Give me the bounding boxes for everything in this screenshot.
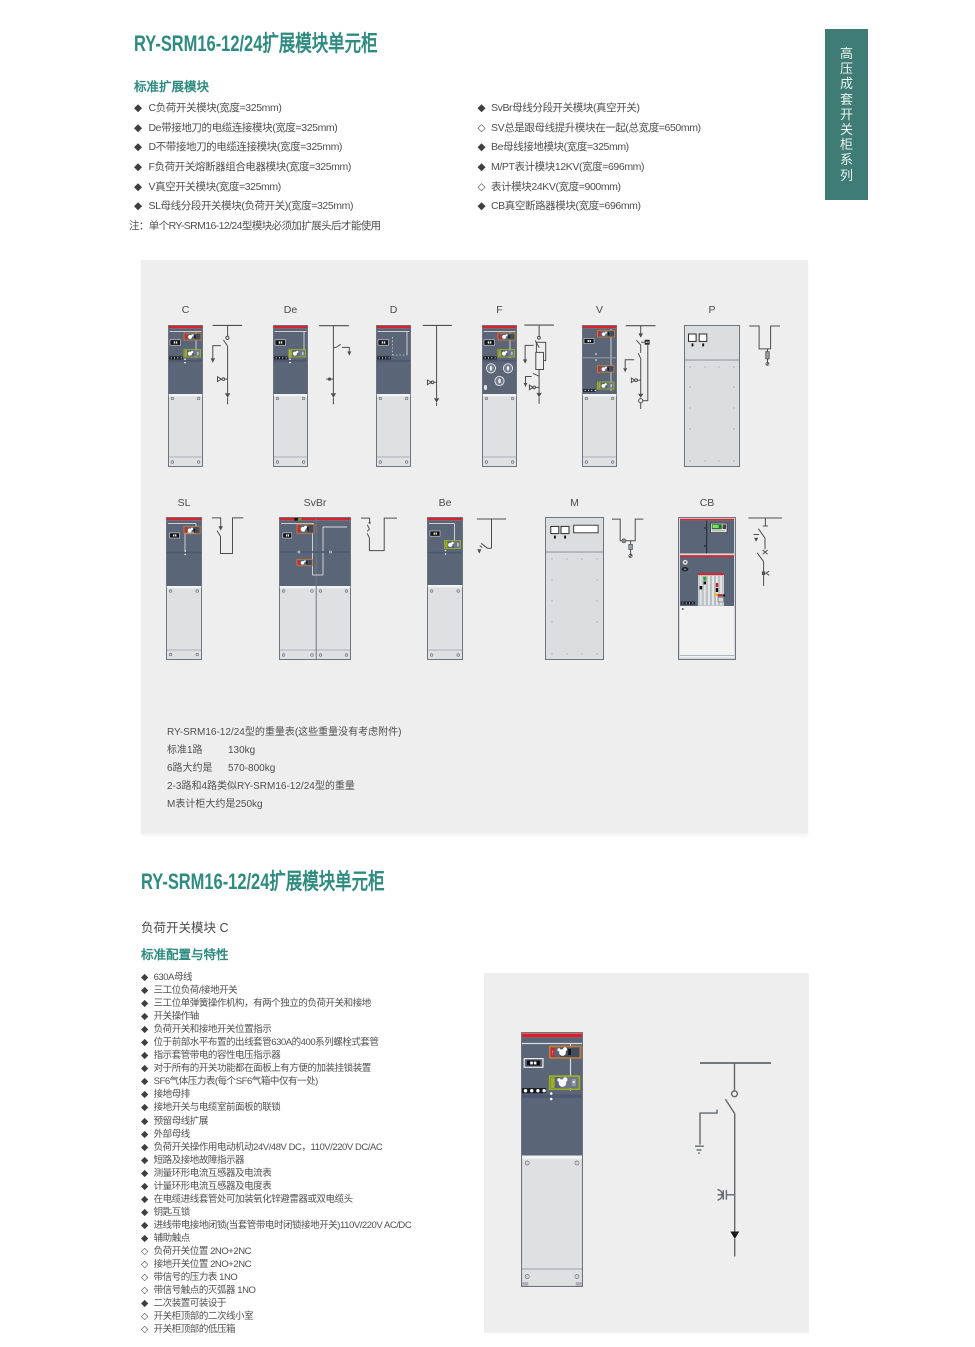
svg-text:!: ! (552, 1051, 553, 1057)
